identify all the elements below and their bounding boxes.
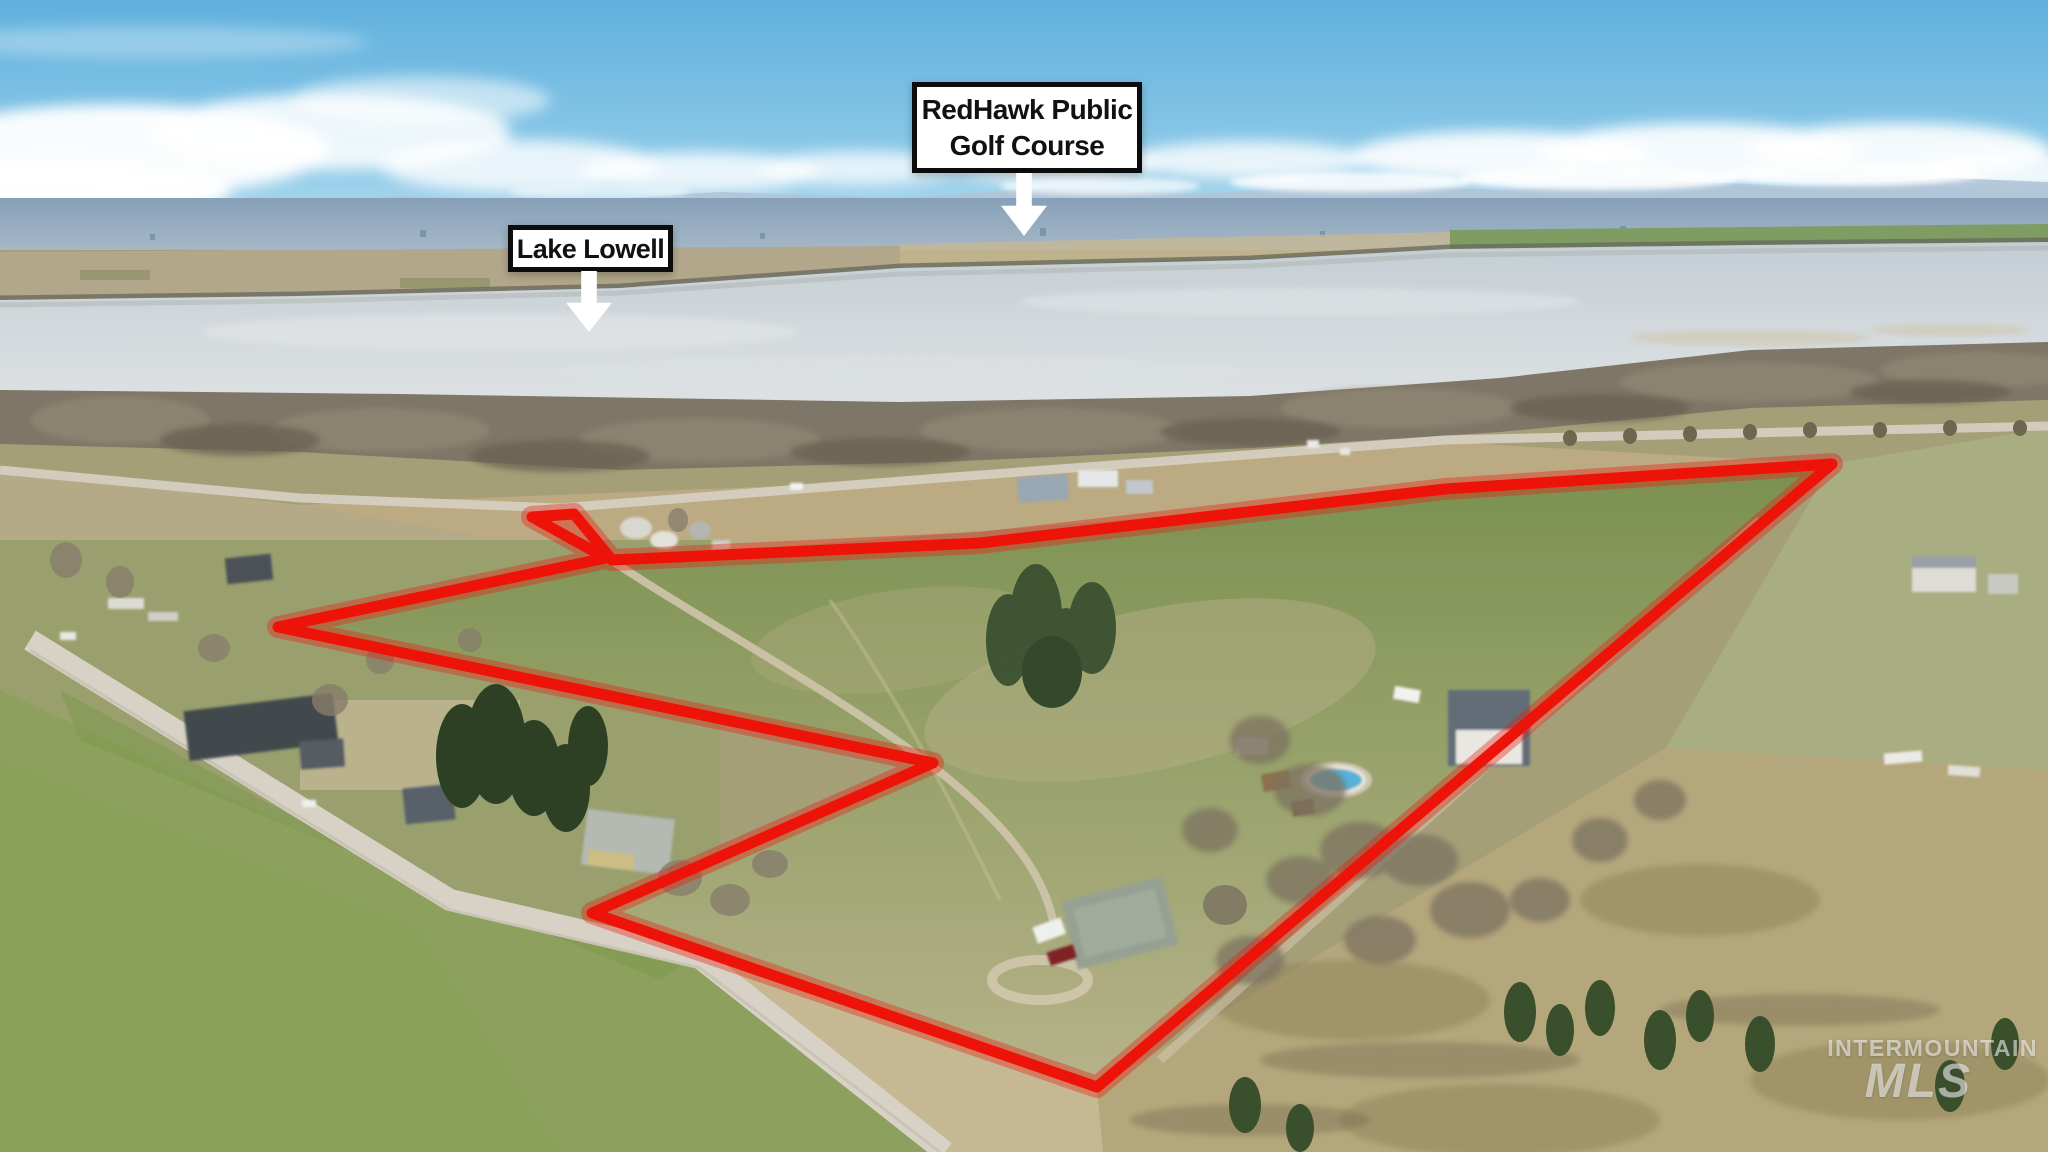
aerial-photo: RedHawk Public Golf Course Lake Lowell I… bbox=[0, 0, 2048, 1152]
mls-watermark: INTERMOUNTAIN MLS bbox=[1827, 1036, 2038, 1104]
golf-course-label-line1: RedHawk Public bbox=[922, 92, 1133, 128]
golf-course-label: RedHawk Public Golf Course bbox=[912, 82, 1142, 173]
golf-course-label-line2: Golf Course bbox=[950, 128, 1105, 164]
lake-label: Lake Lowell bbox=[508, 225, 673, 272]
lake-label-text: Lake Lowell bbox=[517, 231, 665, 267]
mls-watermark-line2: MLS bbox=[1827, 1060, 1972, 1104]
